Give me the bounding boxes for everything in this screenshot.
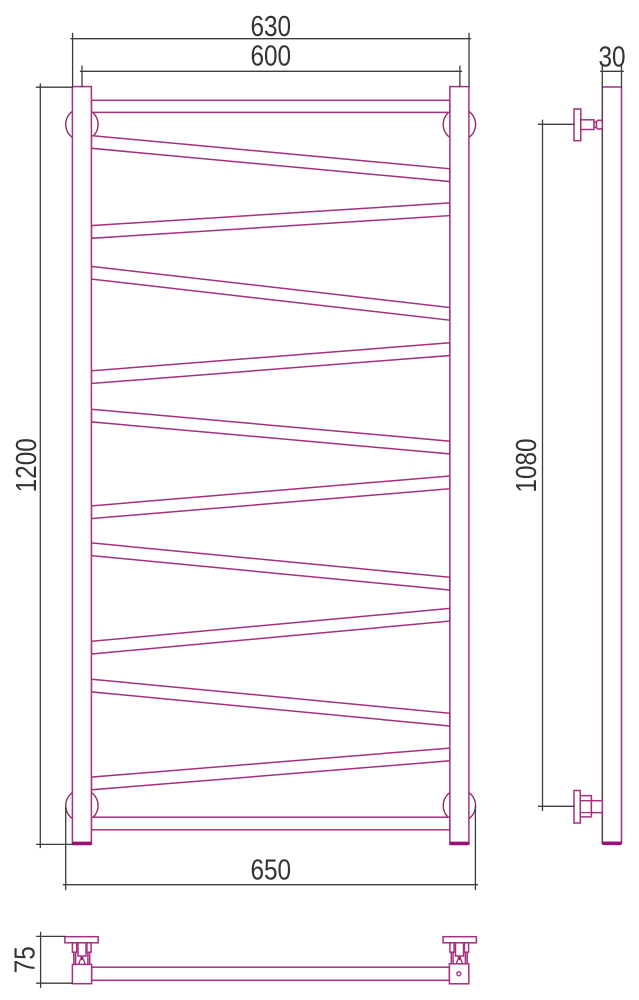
svg-text:630: 630 [250, 10, 291, 42]
svg-text:1080: 1080 [510, 438, 542, 492]
svg-text:75: 75 [9, 946, 41, 973]
svg-text:650: 650 [250, 854, 291, 886]
svg-text:600: 600 [250, 40, 291, 72]
svg-text:30: 30 [598, 41, 625, 73]
svg-text:1200: 1200 [10, 438, 42, 492]
